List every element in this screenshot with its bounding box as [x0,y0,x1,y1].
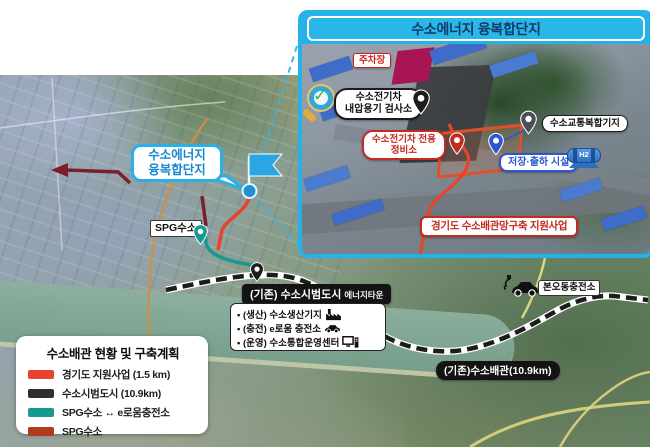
monitor-icon [342,336,359,349]
inset-detail-panel: 수소에너지 융복합단지 [298,10,650,258]
inspection-station-label: 수소전기차 내압용기 검사소 [334,88,423,120]
legend-label-spg: SPG수소 [62,424,102,439]
complex-callout-line2: 융복합단지 [148,163,206,178]
repair-pin-icon [449,132,465,155]
pilot-city-tag: (기존) 수소시범도시에너지타운 [242,284,391,304]
complex-callout-line1: 수소에너지 [148,148,206,163]
legend-title: 수소배관 현황 및 구축계획 [28,343,198,362]
legend-swatch-black [28,389,54,398]
ev-car-icon [502,273,539,297]
pilot-facility-box: (생산) 수소생산기지 (충전) e로움 충전소 (운영) 수소통합운영센터 [230,303,386,351]
inspection-pin-icon [412,89,430,115]
facility-row-production: (생산) 수소생산기지 [237,307,380,321]
pilot-city-pin-icon [250,262,264,282]
h2-tank-icon: H2 [566,146,602,170]
complex-callout-bubble: 수소에너지 융복합단지 [131,144,223,182]
legend-row-spg: SPG수소 [28,424,198,439]
facility-row-operation: (운영) 수소통합운영센터 [237,335,380,349]
legend-swatch-darkred [28,427,54,436]
h2-tank-text: H2 [566,150,602,159]
pilot-city-tag-sub: 에너지타운 [344,290,383,300]
repair-shop-label: 수소전기차 전용 정비소 [362,130,446,160]
transport-hub-pin-icon [520,110,537,135]
facility-row-charging: (충전) e로움 충전소 [237,321,380,335]
transport-hub-label: 수소교통복합기지 [542,115,628,132]
city-texture [0,75,340,305]
legend-row-spg-eroum: SPG수소 ↔ e로움충전소 [28,405,198,420]
legend-row-gyeonggi: 경기도 지원사업 (1.5 km) [28,367,198,382]
legend-row-pilot-city: 수소시범도시 (10.9km) [28,386,198,401]
storage-pin-icon [488,132,504,156]
legend-label-spg-eroum: SPG수소 ↔ e로움충전소 [62,405,170,420]
facility-charging-label: (충전) e로움 충전소 [237,321,321,335]
inset-satellite-map: ✓ 주차장 수소전기차 내압용기 검사소 수소전기차 전용 정비소 [302,44,650,254]
facility-operation-label: (운영) 수소통합운영센터 [237,335,339,349]
hydrogen-map-infographic: 수소에너지 융복합단지 SPG수소 (기존) 수소시범도시에너지타운 (생산) … [0,0,650,447]
legend-swatch-teal [28,408,54,417]
pilot-city-tag-main: (기존) 수소시범도시 [250,289,341,301]
spg-pin-icon [193,224,208,245]
legend-label-gyeonggi: 경기도 지원사업 (1.5 km) [62,367,170,382]
legend-swatch-red [28,370,54,379]
bono-station-label: 본오동충전소 [538,280,600,296]
car-icon [324,323,341,333]
facility-production-label: (생산) 수소생산기지 [237,307,322,321]
legend-box: 수소배관 현황 및 구축계획 경기도 지원사업 (1.5 km) 수소시범도시 … [16,336,208,434]
existing-pipeline-tag: (기존)수소배관(10.9km) [436,361,560,380]
parking-label: 주차장 [353,53,391,68]
pipeline-project-label: 경기도 수소배관망구축 지원사업 [420,216,578,237]
inset-title: 수소에너지 융복합단지 [307,16,645,41]
factory-icon [325,308,342,321]
inset-labels: ✓ 주차장 수소전기차 내압용기 검사소 수소전기차 전용 정비소 [302,44,650,254]
legend-label-pilot-city: 수소시범도시 (10.9km) [62,386,161,401]
inset-header: 수소에너지 융복합단지 [302,14,650,44]
